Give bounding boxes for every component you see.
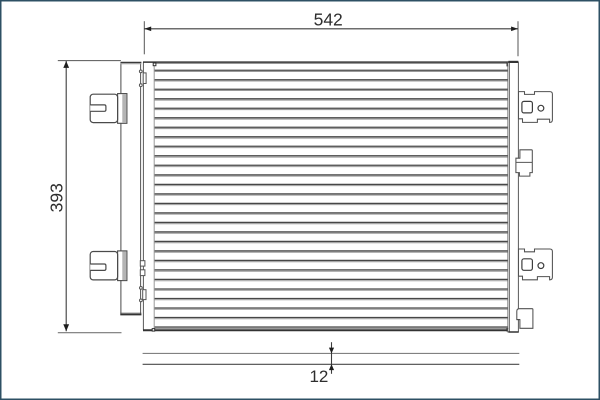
svg-text:393: 393 — [47, 183, 67, 212]
svg-text:12: 12 — [309, 367, 328, 386]
svg-text:542: 542 — [314, 10, 343, 30]
